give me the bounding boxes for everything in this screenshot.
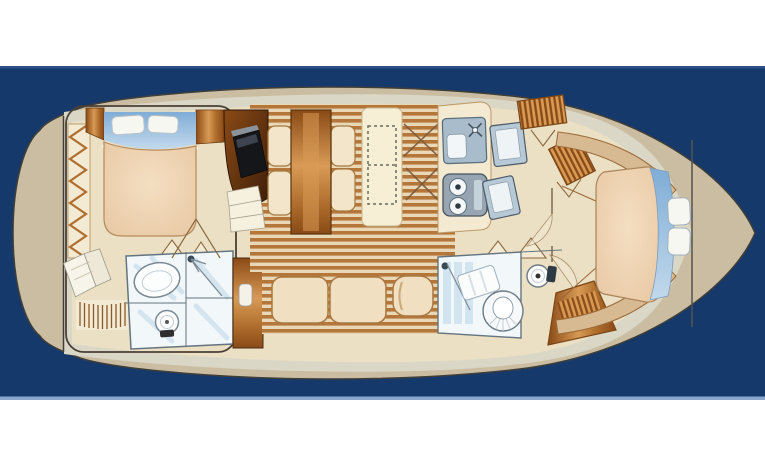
dinette-seat: [268, 171, 292, 215]
room-aft-head: [126, 251, 263, 349]
room-lower-salon: [272, 276, 433, 323]
galley-stove-unit: [443, 174, 487, 216]
aft-toilet-drain: [165, 320, 169, 324]
salon-steps: [227, 186, 265, 232]
aft-pillow-right: [148, 115, 179, 134]
sink-basin: [447, 134, 467, 159]
fwd-double-berth: [596, 167, 660, 302]
galley-sink-unit: [442, 117, 487, 163]
table-grain-highlight: [303, 113, 319, 231]
hanging-locker-upper: [517, 95, 566, 129]
water-band-bottom-edge: [0, 397, 765, 401]
aft-head-floor: [126, 251, 233, 349]
aft-pillow-left: [111, 115, 144, 135]
dinette-seat: [331, 169, 355, 211]
fwd-pillow-top: [667, 197, 690, 225]
boat-floorplan-canvas: [0, 0, 765, 450]
settee-cushion-right: [330, 277, 386, 323]
aft-toilet-base: [160, 330, 174, 338]
cabinet-basin-icon: [239, 284, 252, 306]
dinette-seat: [331, 126, 355, 166]
aft-double-berth: [104, 142, 196, 236]
floorplan-svg: [0, 0, 765, 450]
fwd-pillow-bottom: [668, 228, 691, 256]
dinette-seat: [268, 126, 292, 166]
aft-locker-slats: [76, 300, 128, 330]
water-band-top-edge: [0, 66, 765, 69]
settee-cushion-left: [272, 277, 328, 323]
aft-wood-shelf-right: [196, 110, 224, 144]
